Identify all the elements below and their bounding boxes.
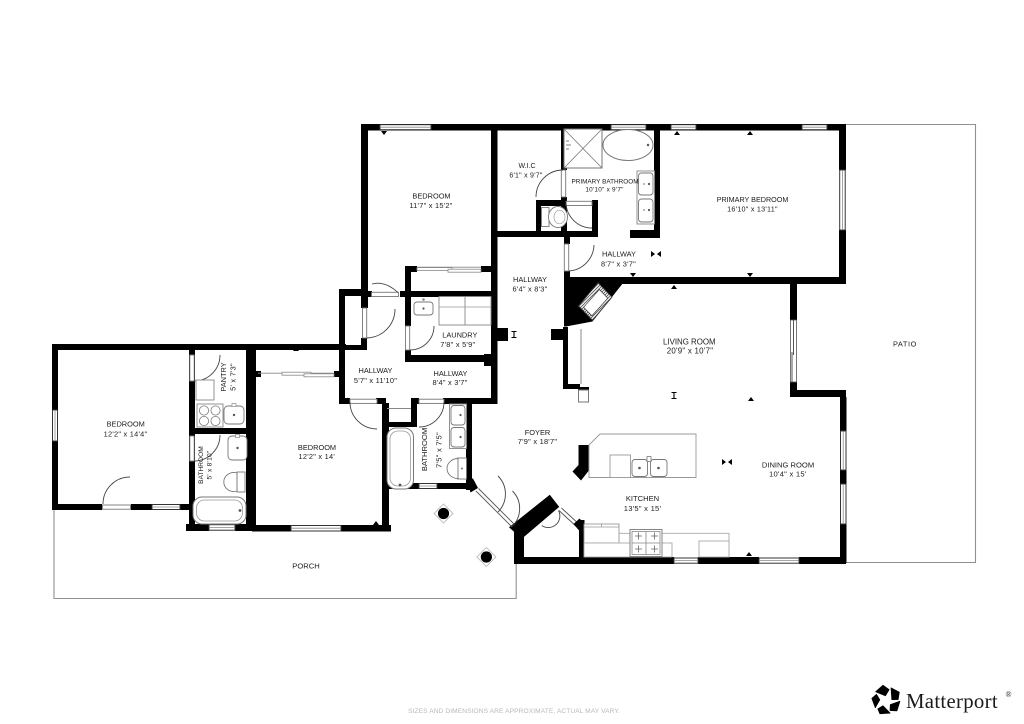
svg-text:7'5" x 7'5": 7'5" x 7'5" [435,432,444,468]
svg-text:PRIMARY BEDROOM: PRIMARY BEDROOM [717,195,789,204]
svg-text:DINING ROOM: DINING ROOM [762,460,814,469]
svg-text:8'4" x 3'7": 8'4" x 3'7" [432,378,467,387]
svg-text:PORCH: PORCH [292,562,319,571]
svg-text:HALLWAY: HALLWAY [602,250,636,259]
svg-text:5' x 7'3": 5' x 7'3" [229,363,238,391]
svg-text:5' x 8'10": 5' x 8'10" [207,450,214,479]
svg-text:Matterport: Matterport [906,690,998,713]
svg-text:12'2" x 14': 12'2" x 14' [299,452,336,461]
svg-text:7'8" x 5'9": 7'8" x 5'9" [440,340,475,349]
svg-text:13'5" x 15': 13'5" x 15' [624,504,662,513]
svg-text:BEDROOM: BEDROOM [412,191,450,200]
svg-text:®: ® [1006,690,1012,699]
svg-text:20'9" x 10'7": 20'9" x 10'7" [667,347,714,356]
svg-text:10'4" x 15': 10'4" x 15' [769,470,807,479]
svg-text:HALLWAY: HALLWAY [359,366,393,375]
svg-text:12'2" x 14'4": 12'2" x 14'4" [104,430,148,439]
svg-text:7'9" x 18'7": 7'9" x 18'7" [518,437,558,446]
svg-text:BATHROOM: BATHROOM [420,428,429,471]
svg-text:FOYER: FOYER [525,428,550,437]
svg-text:16'10" x 13'11": 16'10" x 13'11" [727,205,778,214]
svg-text:5'7" x 11'10": 5'7" x 11'10" [354,376,397,385]
svg-text:BEDROOM: BEDROOM [107,420,145,429]
svg-text:BATHROOM: BATHROOM [198,446,205,484]
svg-text:8'7" x 3'7": 8'7" x 3'7" [601,260,636,269]
svg-text:HALLWAY: HALLWAY [513,275,547,284]
svg-text:SIZES AND DIMENSIONS ARE APPRO: SIZES AND DIMENSIONS ARE APPROXIMATE, AC… [408,708,620,715]
svg-text:BEDROOM: BEDROOM [298,443,336,452]
svg-text:HALLWAY: HALLWAY [434,369,468,378]
svg-text:6'4" x 8'3": 6'4" x 8'3" [512,285,547,294]
svg-text:LAUNDRY: LAUNDRY [442,330,477,339]
svg-text:10'10" x 9'7": 10'10" x 9'7" [585,187,623,194]
svg-text:W.I.C: W.I.C [518,163,535,170]
svg-text:KITCHEN: KITCHEN [626,494,659,503]
svg-text:PATIO: PATIO [893,339,917,348]
svg-text:PANTRY: PANTRY [219,362,228,391]
svg-text:LIVING ROOM: LIVING ROOM [663,337,716,346]
svg-text:11'7" x 15'2": 11'7" x 15'2" [409,201,452,210]
svg-text:PRIMARY BATHROOM: PRIMARY BATHROOM [571,179,638,186]
svg-text:6'1" x 9'7": 6'1" x 9'7" [509,173,543,180]
